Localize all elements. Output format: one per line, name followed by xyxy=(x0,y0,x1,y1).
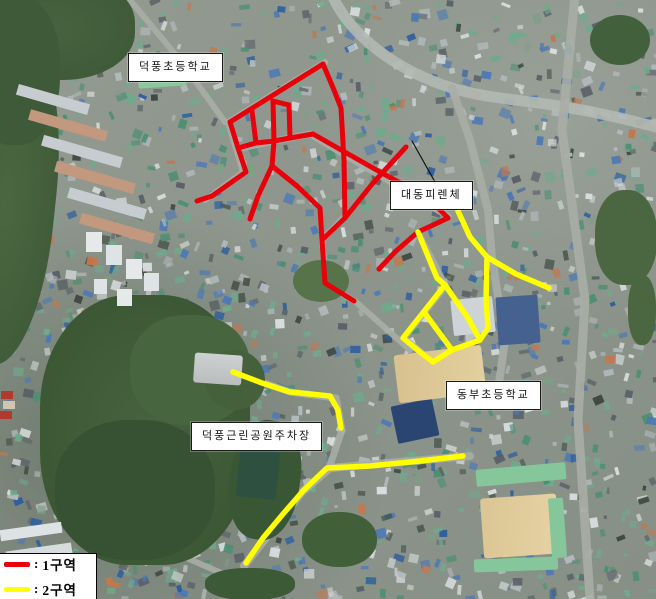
zone1-route-line xyxy=(272,141,322,240)
zone2-route-line xyxy=(418,232,445,285)
zone2-route-line xyxy=(458,211,487,257)
satellite-map-canvas: 덕풍초등학교 대동피렌체 동부초등학교 덕풍근린공원주차장 : 1구역 : 2구… xyxy=(0,0,656,599)
zone2-route-line xyxy=(487,257,549,288)
map-label-deokpung-park-parking: 덕풍근린공원주차장 xyxy=(191,422,322,451)
legend-label-zone2: 2구역 xyxy=(42,579,77,599)
zone1-route-line xyxy=(197,122,246,201)
zone2-route-line xyxy=(403,285,445,362)
zone2-yellow-line-swatch xyxy=(4,587,30,592)
zone1-red-line-swatch xyxy=(4,562,30,567)
legend-separator: : xyxy=(34,556,38,572)
label-text: 덕풍초등학교 xyxy=(139,61,212,73)
zone1-route-line xyxy=(252,111,256,143)
zone2-route-line xyxy=(246,456,463,563)
zone2-route-line xyxy=(233,372,341,428)
zone1-route-line xyxy=(273,101,274,141)
zone1-route-line xyxy=(289,105,290,138)
zone1-route-line xyxy=(230,64,323,122)
legend-item-zone2: : 2구역 xyxy=(4,579,92,599)
zone2-route-line xyxy=(424,312,452,350)
label-text: 대동피렌체 xyxy=(401,189,462,201)
zone2-route-line xyxy=(445,285,480,340)
label-text: 동부초등학교 xyxy=(457,389,530,401)
label-leader-line xyxy=(412,141,435,182)
legend-separator: : xyxy=(34,581,38,597)
zone1-route-line xyxy=(250,166,272,219)
legend-item-zone1: : 1구역 xyxy=(4,554,92,574)
map-label-dongbu-elementary-school: 동부초등학교 xyxy=(446,381,541,410)
legend-label-zone1: 1구역 xyxy=(42,554,77,574)
zone-routes-overlay xyxy=(0,0,656,599)
map-label-daedong-firenze: 대동피렌체 xyxy=(390,181,473,210)
map-label-deokpung-elementary-school: 덕풍초등학교 xyxy=(128,53,223,82)
zone1-route-line xyxy=(379,218,448,269)
zone1-route-line xyxy=(322,218,354,301)
label-text: 덕풍근린공원주차장 xyxy=(202,430,311,442)
map-legend: : 1구역 : 2구역 xyxy=(0,553,97,599)
